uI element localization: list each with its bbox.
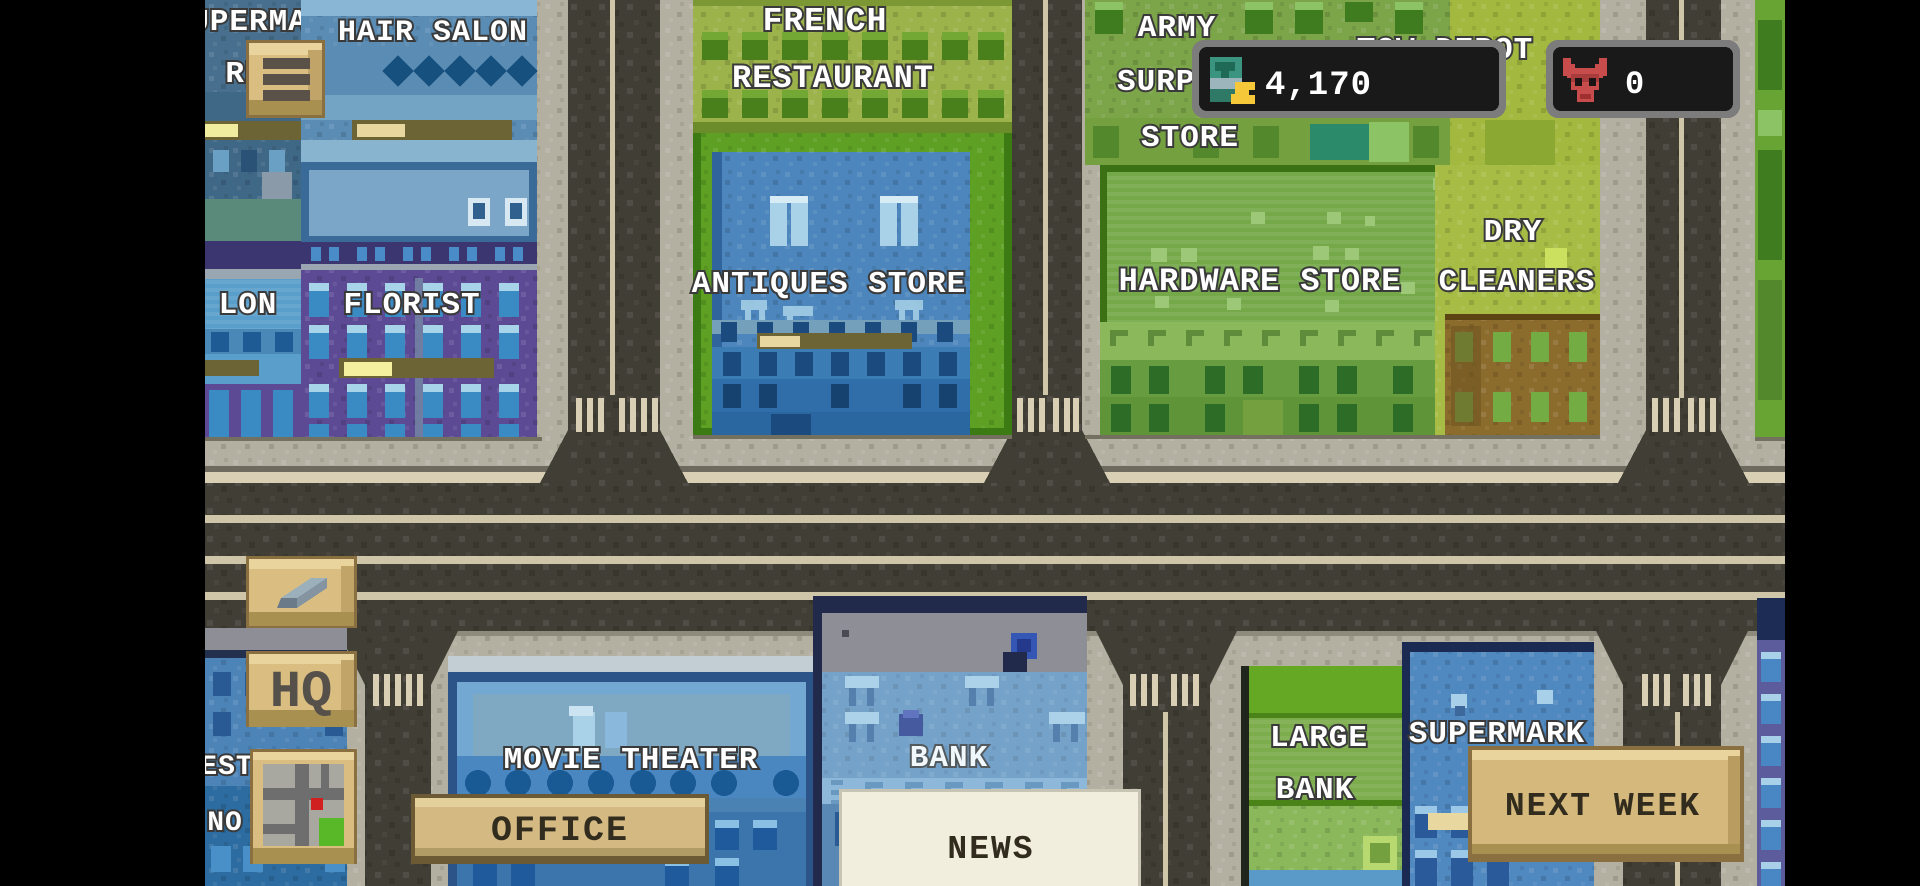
- svg-text:EST: EST: [205, 752, 254, 783]
- svg-text:DRY: DRY: [1484, 215, 1543, 250]
- svg-text:4,170: 4,170: [1265, 67, 1372, 105]
- svg-text:0: 0: [1625, 66, 1644, 103]
- svg-text:STORE: STORE: [1141, 121, 1239, 156]
- svg-text:NO: NO: [207, 808, 243, 839]
- svg-text:UPERMA: UPERMA: [205, 5, 308, 40]
- svg-text:ANTIQUES STORE: ANTIQUES STORE: [692, 267, 966, 302]
- svg-text:CLEANERS: CLEANERS: [1439, 265, 1596, 300]
- svg-text:FLORIST: FLORIST: [343, 288, 480, 323]
- svg-text:FRENCH: FRENCH: [763, 3, 888, 40]
- svg-text:RESTAURANT: RESTAURANT: [732, 60, 934, 97]
- svg-text:NEXT WEEK: NEXT WEEK: [1505, 788, 1701, 825]
- svg-text:LARGE: LARGE: [1270, 721, 1368, 756]
- svg-text:HAIR SALON: HAIR SALON: [338, 16, 528, 50]
- svg-text:HQ: HQ: [270, 663, 332, 722]
- svg-text:NEWS: NEWS: [947, 831, 1034, 868]
- svg-text:OFFICE: OFFICE: [491, 811, 629, 851]
- svg-text:LON: LON: [219, 288, 278, 323]
- svg-text:HARDWARE STORE: HARDWARE STORE: [1119, 263, 1402, 300]
